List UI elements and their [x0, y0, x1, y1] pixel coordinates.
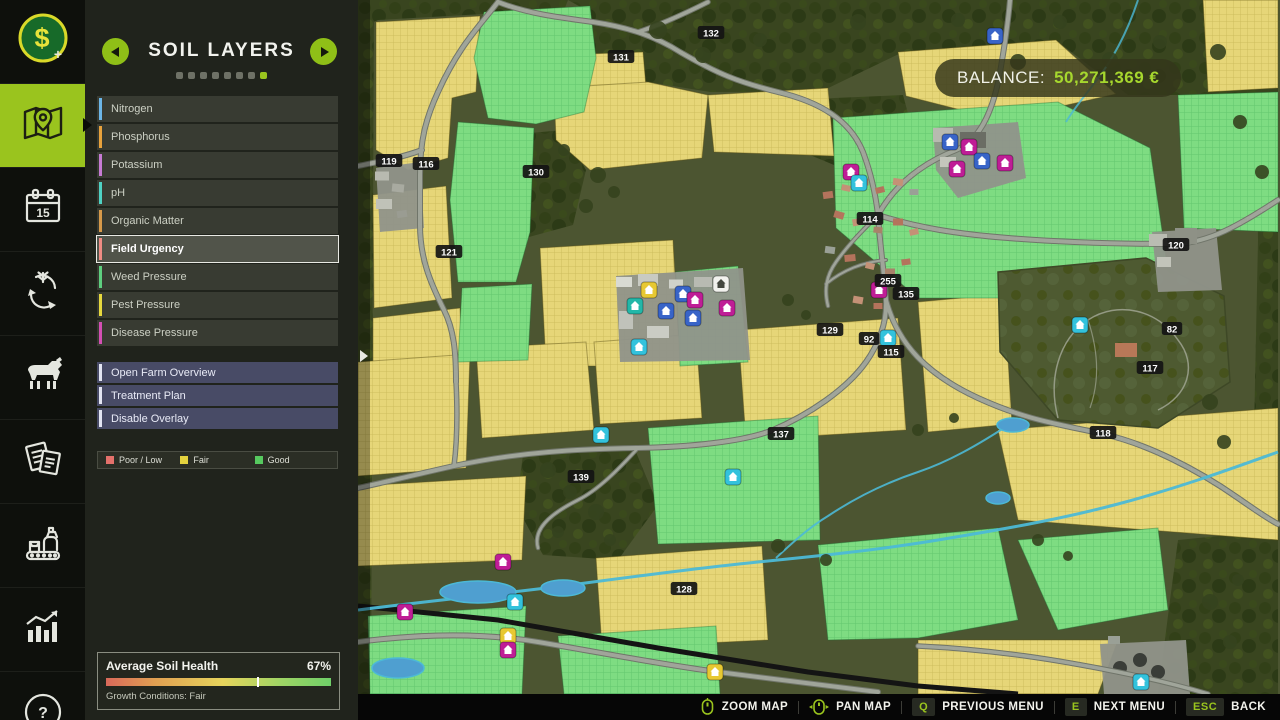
- field-number: 130: [528, 168, 544, 179]
- poi-marker-cyan: [1133, 674, 1149, 690]
- sidebar-item-contracts[interactable]: [0, 420, 85, 504]
- panel-expand-arrow[interactable]: [360, 350, 368, 362]
- button-accent-bar: [99, 410, 102, 427]
- sidebar-item-statistics[interactable]: [0, 588, 85, 672]
- poi-marker-cyan: [880, 330, 896, 346]
- layer-color-bar: [99, 182, 102, 204]
- hint-next-menu[interactable]: ENEXT MENU: [1065, 698, 1165, 716]
- sidebar-item-map[interactable]: [0, 84, 85, 168]
- field-badge-116: 116: [413, 157, 440, 171]
- svg-text:+: +: [53, 46, 61, 62]
- hint-zoom-map[interactable]: ZOOM MAP: [700, 698, 788, 716]
- game-screen: 1321311191161301211142551351299211512082…: [0, 0, 1280, 720]
- hint-back[interactable]: ESCBACK: [1186, 698, 1266, 716]
- legend-swatch: [180, 456, 188, 464]
- sidebar-item-production[interactable]: [0, 504, 85, 588]
- layer-list: NitrogenPhosphorusPotassiumpHOrganic Mat…: [85, 92, 358, 346]
- field-number: 132: [703, 29, 719, 40]
- field-number: 255: [880, 277, 897, 288]
- poi-marker-magenta: [961, 139, 977, 155]
- field-number: 115: [883, 348, 899, 359]
- rotation-icon: [16, 264, 70, 323]
- layer-item-pest-pressure[interactable]: Pest Pressure: [97, 292, 338, 318]
- poi-marker-cyan: [631, 339, 647, 355]
- legend-item-poor-low: Poor / Low: [106, 455, 180, 465]
- mouse-zoom-icon: [700, 698, 715, 716]
- field-number: 118: [1095, 429, 1110, 440]
- page-dot-2: [188, 72, 195, 79]
- legend-label: Good: [268, 455, 290, 465]
- poi-marker-blue: [685, 310, 701, 326]
- treatment-plan-button[interactable]: Treatment Plan: [97, 385, 338, 406]
- sidebar-item-help[interactable]: ?: [0, 672, 85, 720]
- field-badge-120: 120: [1163, 238, 1190, 252]
- balance-value: 50,271,369 €: [1054, 68, 1159, 88]
- field-number: 139: [573, 473, 589, 484]
- poi-marker-magenta: [719, 300, 735, 316]
- layer-item-phosphorus[interactable]: Phosphorus: [97, 124, 338, 150]
- svg-text:?: ?: [38, 705, 48, 720]
- key-badge: ESC: [1186, 698, 1224, 716]
- field-number: 82: [1167, 325, 1178, 336]
- poi-marker-yellow: [707, 664, 723, 680]
- soil-health-gradient-bar: [106, 678, 331, 686]
- key-badge: E: [1065, 698, 1087, 716]
- layer-label: Potassium: [111, 159, 162, 171]
- poi-marker-magenta: [687, 292, 703, 308]
- button-label: Open Farm Overview: [111, 367, 216, 379]
- layer-color-bar: [99, 238, 102, 260]
- legend-swatch: [255, 456, 263, 464]
- field-number: 120: [1168, 241, 1184, 252]
- poi-marker-magenta: [997, 155, 1013, 171]
- layer-item-potassium[interactable]: Potassium: [97, 152, 338, 178]
- page-dot-3: [200, 72, 207, 79]
- poi-marker-cyan: [507, 594, 523, 610]
- button-accent-bar: [99, 387, 102, 404]
- poi-marker-cyan: [1072, 317, 1088, 333]
- hint-separator: [1054, 701, 1055, 714]
- legend-label: Poor / Low: [119, 455, 162, 465]
- layer-item-ph[interactable]: pH: [97, 180, 338, 206]
- money-icon: $+: [16, 12, 70, 71]
- field-number: 116: [418, 160, 433, 171]
- page-dot-6: [236, 72, 243, 79]
- hint-label: BACK: [1231, 701, 1266, 713]
- legend-swatch: [106, 456, 114, 464]
- layer-item-disease-pressure[interactable]: Disease Pressure: [97, 320, 338, 346]
- help-icon: ?: [16, 672, 70, 720]
- field-badge-132: 132: [698, 26, 725, 40]
- contracts-icon: [16, 432, 70, 491]
- growth-conditions-label: Growth Conditions: Fair: [106, 691, 331, 702]
- poi-marker-cyan: [851, 175, 867, 191]
- layer-color-bar: [99, 154, 102, 176]
- legend-label: Fair: [193, 455, 209, 465]
- statistics-icon: [16, 600, 70, 659]
- poi-marker-cyan: [593, 427, 609, 443]
- field-badge-255: 255: [875, 274, 902, 288]
- poi-marker-blue: [987, 28, 1003, 44]
- soil-health-title: Average Soil Health: [106, 659, 218, 673]
- page-dot-7: [248, 72, 255, 79]
- hint-separator: [1175, 701, 1176, 714]
- panel-header: SOIL LAYERS: [85, 0, 358, 92]
- next-page-button[interactable]: [310, 38, 337, 65]
- sidebar: $+15?: [0, 0, 85, 720]
- map-canvas[interactable]: 1321311191161301211142551351299211512082…: [358, 0, 1280, 720]
- hint-previous-menu[interactable]: QPREVIOUS MENU: [912, 698, 1044, 716]
- layer-item-weed-pressure[interactable]: Weed Pressure: [97, 264, 338, 290]
- production-icon: [16, 516, 70, 575]
- field-badge-139: 139: [568, 470, 595, 484]
- field-number: 92: [864, 335, 875, 346]
- legend-item-fair: Fair: [180, 455, 254, 465]
- field-number: 129: [822, 326, 838, 337]
- sidebar-item-crop-rotation[interactable]: [0, 252, 85, 336]
- layer-color-bar: [99, 294, 102, 316]
- sidebar-item-calendar[interactable]: 15: [0, 168, 85, 252]
- hint-label: PREVIOUS MENU: [942, 701, 1044, 713]
- poi-marker-yellow: [641, 282, 657, 298]
- field-number: 117: [1142, 364, 1157, 375]
- map-icon: [15, 95, 71, 156]
- soil-health-value: 67%: [307, 659, 331, 673]
- button-accent-bar: [99, 364, 102, 381]
- layer-label: Disease Pressure: [111, 327, 198, 339]
- hint-label: NEXT MENU: [1094, 701, 1165, 713]
- field-badge-82: 82: [1162, 322, 1182, 336]
- field-badge-130: 130: [523, 165, 550, 179]
- field-badge-114: 114: [857, 212, 884, 226]
- legend-item-good: Good: [255, 455, 329, 465]
- field-number: 131: [613, 53, 630, 64]
- poi-marker-blue: [942, 134, 958, 150]
- poi-marker-blue: [658, 303, 674, 319]
- soil-health-marker: [257, 677, 259, 687]
- field-number: 137: [773, 430, 789, 441]
- field-badge-119: 119: [376, 154, 403, 168]
- field-number: 128: [676, 585, 692, 596]
- layer-color-bar: [99, 98, 102, 120]
- field-badge-135: 135: [893, 287, 920, 301]
- animals-icon: [16, 348, 70, 407]
- poi-marker-magenta: [397, 604, 413, 620]
- page-dot-5: [224, 72, 231, 79]
- layer-label: Field Urgency: [111, 243, 184, 255]
- sidebar-item-animals[interactable]: [0, 336, 85, 420]
- layer-item-organic-matter[interactable]: Organic Matter: [97, 208, 338, 234]
- field-number: 119: [381, 157, 396, 168]
- key-badge: Q: [912, 698, 935, 716]
- poi-marker-white: [713, 276, 729, 292]
- layer-color-bar: [99, 266, 102, 288]
- field-badge-121: 121: [436, 245, 463, 259]
- field-number: 114: [862, 215, 878, 226]
- poi-marker-cyan: [725, 469, 741, 485]
- button-label: Disable Overlay: [111, 413, 189, 425]
- balance-label: BALANCE:: [957, 68, 1045, 88]
- layer-label: pH: [111, 187, 125, 199]
- hint-label: ZOOM MAP: [722, 701, 788, 713]
- svg-text:15: 15: [36, 206, 50, 220]
- overlay-legend: Poor / LowFairGood: [97, 451, 338, 469]
- poi-marker-blue: [974, 153, 990, 169]
- field-badge-115: 115: [878, 345, 905, 359]
- field-badge-92: 92: [859, 332, 879, 346]
- page-dot-8: [260, 72, 267, 79]
- layer-label: Organic Matter: [111, 215, 184, 227]
- field-badge-128: 128: [671, 582, 698, 596]
- field-badge-137: 137: [768, 427, 795, 441]
- balance-pill: BALANCE: 50,271,369 €: [935, 59, 1181, 97]
- svg-text:$: $: [34, 23, 49, 53]
- sidebar-selected-arrow: [83, 118, 92, 132]
- hint-label: PAN MAP: [836, 701, 891, 713]
- field-number: 121: [441, 248, 458, 259]
- layer-item-nitrogen[interactable]: Nitrogen: [97, 96, 338, 122]
- poi-marker-magenta: [949, 161, 965, 177]
- poi-marker-magenta: [495, 554, 511, 570]
- hint-separator: [798, 701, 799, 714]
- layer-color-bar: [99, 322, 102, 344]
- right-arrow-icon: [321, 47, 329, 57]
- layer-label: Phosphorus: [111, 131, 170, 143]
- layer-color-bar: [99, 210, 102, 232]
- poi-marker-teal: [627, 298, 643, 314]
- button-label: Treatment Plan: [111, 390, 186, 402]
- soil-layers-panel: SOIL LAYERS NitrogenPhosphorusPotassiump…: [85, 0, 358, 720]
- layer-label: Weed Pressure: [111, 271, 187, 283]
- disable-overlay-button[interactable]: Disable Overlay: [97, 408, 338, 429]
- hint-pan-map[interactable]: PAN MAP: [809, 698, 891, 716]
- page-dots: [85, 72, 358, 79]
- field-badge-129: 129: [817, 323, 844, 337]
- layer-color-bar: [99, 126, 102, 148]
- calendar-icon: 15: [16, 180, 70, 239]
- poi-marker-magenta: [500, 642, 516, 658]
- field-badge-117: 117: [1137, 361, 1164, 375]
- world-map[interactable]: 1321311191161301211142551351299211512082…: [358, 0, 1280, 720]
- hint-separator: [901, 701, 902, 714]
- mouse-pan-icon: [809, 698, 829, 716]
- page-dot-4: [212, 72, 219, 79]
- layer-item-field-urgency[interactable]: Field Urgency: [97, 236, 338, 262]
- field-badge-118: 118: [1090, 426, 1117, 440]
- layer-label: Pest Pressure: [111, 299, 180, 311]
- action-list: Open Farm OverviewTreatment PlanDisable …: [85, 348, 358, 429]
- layer-label: Nitrogen: [111, 103, 153, 115]
- sidebar-item-finances[interactable]: $+: [0, 0, 85, 84]
- field-badge-131: 131: [608, 50, 635, 64]
- field-number: 135: [898, 290, 915, 301]
- page-dot-1: [176, 72, 183, 79]
- open-farm-overview-button[interactable]: Open Farm Overview: [97, 362, 338, 383]
- soil-health-box: Average Soil Health 67% Growth Condition…: [97, 652, 340, 710]
